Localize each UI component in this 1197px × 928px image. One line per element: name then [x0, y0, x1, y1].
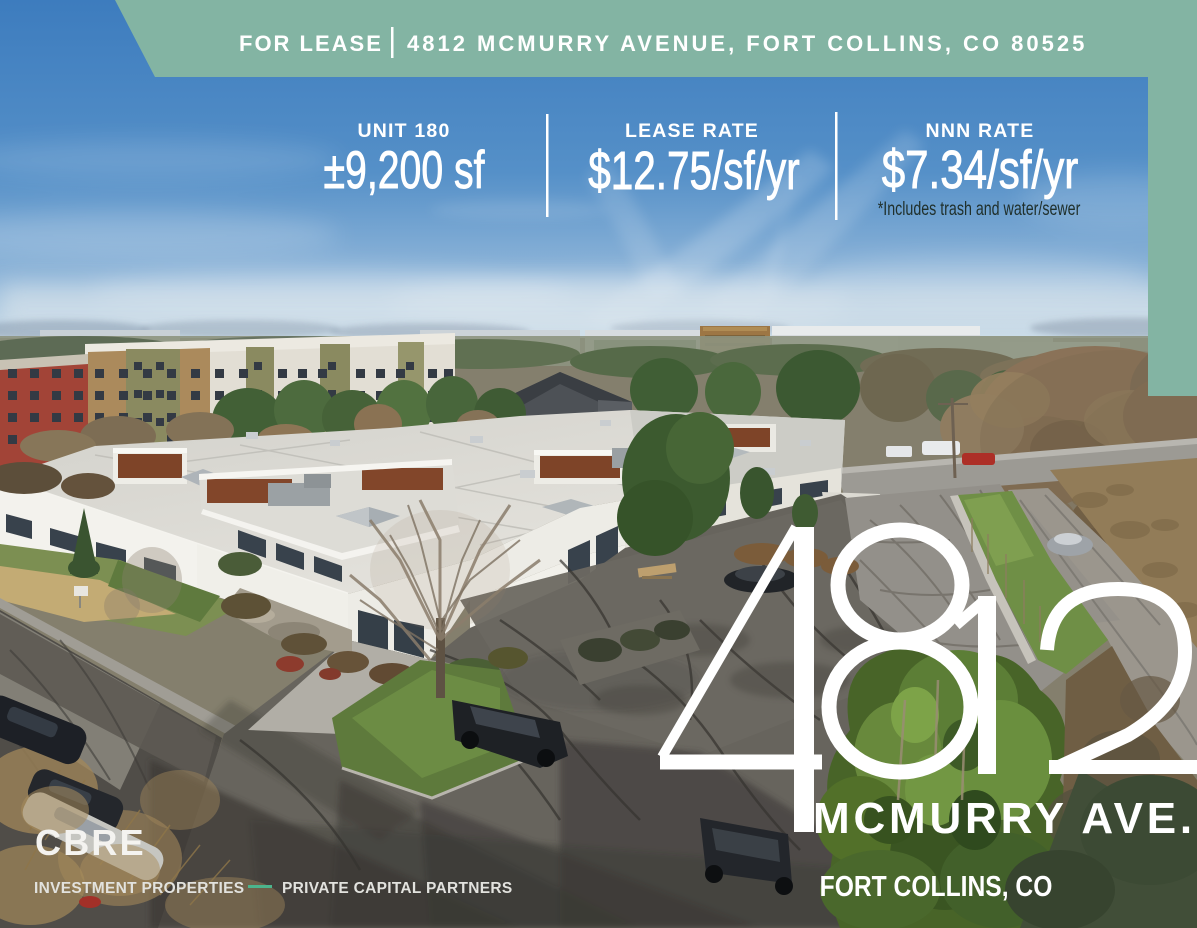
svg-text:MCMURRY AVE.: MCMURRY AVE.	[813, 794, 1196, 843]
svg-text:*Includes trash and water/sewe: *Includes trash and water/sewer	[878, 198, 1081, 219]
svg-text:4812 MCMURRY AVENUE, FORT COLL: 4812 MCMURRY AVENUE, FORT COLLINS, CO 80…	[407, 31, 1087, 56]
svg-text:LEASE RATE: LEASE RATE	[625, 120, 759, 142]
svg-text:FOR LEASE: FOR LEASE	[239, 31, 383, 56]
svg-text:$7.34/sf/yr: $7.34/sf/yr	[882, 140, 1079, 200]
svg-text:PRIVATE CAPITAL PARTNERS: PRIVATE CAPITAL PARTNERS	[282, 880, 513, 897]
svg-text:UNIT 180: UNIT 180	[357, 120, 450, 142]
svg-text:FORT COLLINS, CO: FORT COLLINS, CO	[820, 870, 1053, 902]
svg-text:CBRE: CBRE	[35, 822, 146, 863]
svg-text:$12.75/sf/yr: $12.75/sf/yr	[588, 141, 800, 201]
svg-text:NNN RATE: NNN RATE	[926, 120, 1035, 142]
svg-text:±9,200 sf: ±9,200 sf	[323, 140, 485, 199]
svg-text:INVESTMENT PROPERTIES: INVESTMENT PROPERTIES	[34, 880, 244, 897]
